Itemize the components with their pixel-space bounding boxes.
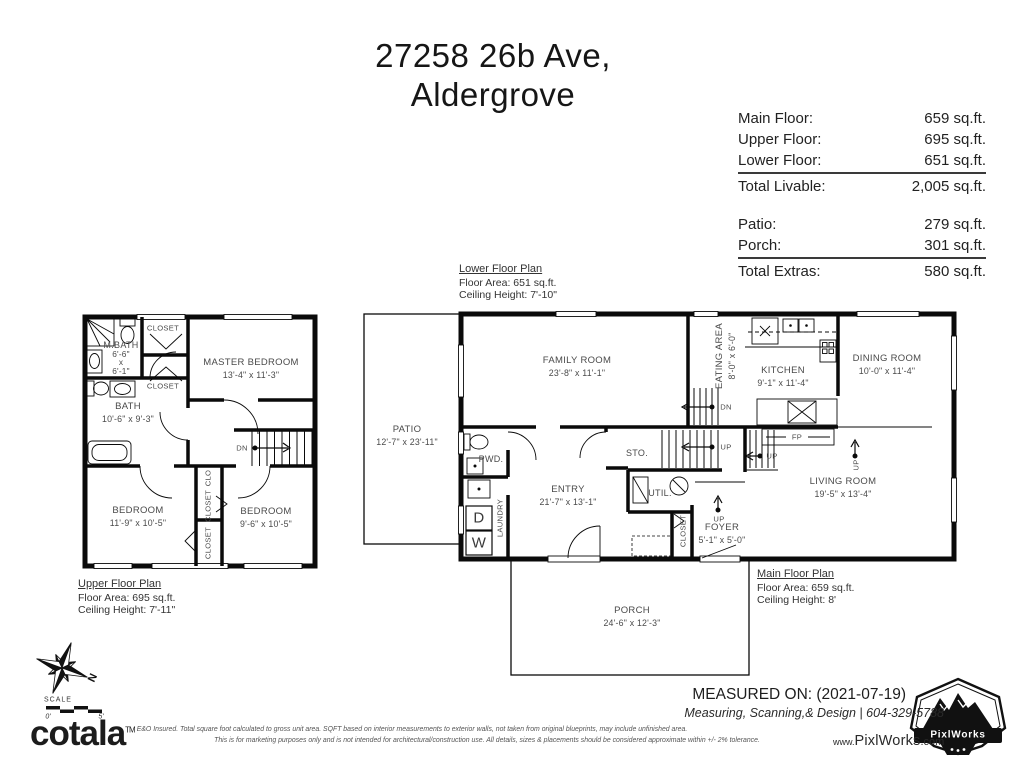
compass-rose-icon <box>27 633 96 702</box>
mbath-label: M.BATH 6'-6" x 6'-1" <box>103 341 138 375</box>
master-bedroom-label: MASTER BEDROOM 13'-4" x 11'-3" <box>203 357 299 381</box>
city-line: Aldergrove <box>375 75 611 114</box>
porch-label: PORCH 24'-6" x 12'-3" <box>603 605 660 629</box>
closet-label: CLOSET <box>204 527 213 559</box>
closet-label: CLOSET <box>147 324 179 333</box>
entry-label: ENTRY 21'-7" x 13'-1" <box>539 484 596 508</box>
table-row: Porch:301 sq.ft. <box>738 235 986 256</box>
address-line: 27258 26b Ave, <box>375 36 611 75</box>
dining-room-label: DINING ROOM 10'-0" x 11'-4" <box>853 353 922 377</box>
living-room-label: LIVING ROOM 19'-5" x 13'-4" <box>810 476 877 500</box>
stairs-up-label: UP <box>713 515 724 524</box>
lower-floor-caption: Lower Floor Plan Floor Area: 651 sq.ft. … <box>459 263 557 302</box>
table-divider <box>738 257 986 259</box>
eating-area-label: EATING AREA 8'-0" x 6'-0" <box>714 323 738 389</box>
stairs-up-label: UP <box>852 459 861 470</box>
closet-label: CLOSET <box>147 382 179 391</box>
disclaimer-line-1: E&O Insured. Total square foot calculate… <box>137 726 688 733</box>
patio-label: PATIO 12'-7" x 23'-11" <box>376 424 438 448</box>
stairs-dn-label: DN <box>236 444 248 453</box>
foyer-label: FOYER 5'-1" x 5'-0" <box>699 522 746 546</box>
fireplace-label: FP <box>792 433 802 442</box>
table-row: Main Floor:659 sq.ft. <box>738 108 986 129</box>
closet-label: CLOSET <box>204 490 213 522</box>
stairs-dn-label: DN <box>720 403 732 412</box>
stairs-up-label: UP <box>720 443 731 452</box>
scale-bar <box>46 706 102 713</box>
area-summary-table: Main Floor:659 sq.ft. Upper Floor:695 sq… <box>738 108 986 282</box>
stairs-up-label: UP <box>766 452 777 461</box>
disclaimer-line-2: This is for marketing purposes only and … <box>214 737 760 744</box>
website-link: www.PixlWorks.com <box>833 733 944 749</box>
washer-label: W <box>472 535 486 552</box>
table-total-row: Total Extras:580 sq.ft. <box>738 261 986 282</box>
scale-label: SCALE <box>44 697 72 704</box>
table-row: Upper Floor:695 sq.ft. <box>738 129 986 150</box>
table-divider <box>738 172 986 174</box>
powder-room-label: PWD. <box>479 454 504 464</box>
measured-on-label: MEASURED ON: (2021-07-19) <box>692 686 906 704</box>
pixlworks-badge-label: PixlWorks <box>930 730 985 741</box>
upper-floor-caption: Upper Floor Plan Floor Area: 695 sq.ft. … <box>78 578 175 617</box>
family-room-label: FAMILY ROOM 23'-8" x 11'-1" <box>543 355 611 379</box>
table-total-row: Total Livable:2,005 sq.ft. <box>738 176 986 197</box>
laundry-label: LAUNDRY <box>496 499 505 537</box>
trademark-symbol: TM <box>125 725 135 734</box>
cotala-logo: cotalaTM <box>30 714 135 754</box>
clo-label: CLO <box>204 470 213 487</box>
main-floor-caption: Main Floor Plan Floor Area: 659 sq.ft. C… <box>757 568 854 607</box>
table-row: Patio:279 sq.ft. <box>738 214 986 235</box>
bath-label: BATH 10'-6" x 9'-3" <box>102 401 154 425</box>
utility-label: UTIL. <box>648 488 672 498</box>
bedroom-label: BEDROOM 9'-6" x 10'-5" <box>240 506 292 530</box>
services-line: Measuring, Scanning,& Design | 604-329-5… <box>684 706 944 720</box>
closet-label: CLOSET <box>679 515 688 547</box>
kitchen-label: KITCHEN 9'-1" x 11'-4" <box>757 365 808 389</box>
storage-label: STO. <box>626 448 648 458</box>
page-title: 27258 26b Ave, Aldergrove <box>375 36 611 114</box>
dryer-label: D <box>473 510 484 527</box>
bedroom-label: BEDROOM 11'-9" x 10'-5" <box>110 505 166 529</box>
floorplan-sheet: 27258 26b Ave, Aldergrove Main Floor:659… <box>0 0 1024 768</box>
table-row: Lower Floor:651 sq.ft. <box>738 150 986 171</box>
